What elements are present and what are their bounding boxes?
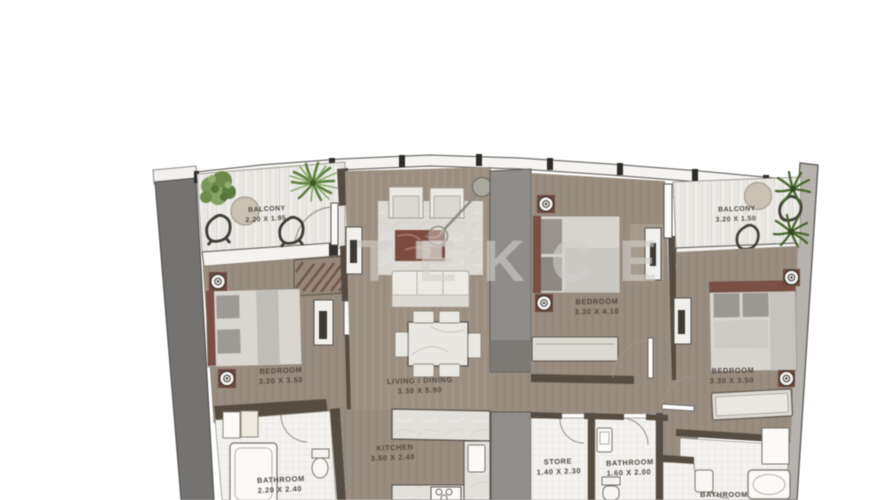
svg-text:3.30 X 3.50: 3.30 X 3.50 [710,376,755,386]
svg-text:1.60 X 2.00: 1.60 X 2.00 [607,467,652,478]
svg-text:BEDROOM: BEDROOM [711,366,754,376]
svg-text:3.30 X 4.10: 3.30 X 4.10 [575,307,620,317]
svg-text:BALCONY: BALCONY [718,205,756,213]
svg-text:BEDROOM: BEDROOM [259,365,302,376]
svg-text:TEKCE: TEKCE [357,229,684,294]
svg-text:BEDROOM: BEDROOM [575,297,618,307]
svg-text:BATHROOM: BATHROOM [700,490,748,499]
svg-text:1.40 X 2.30: 1.40 X 2.30 [537,466,582,477]
svg-text:STORE: STORE [544,457,573,467]
svg-text:3.30 X 5.90: 3.30 X 5.90 [398,385,443,396]
svg-text:3.20 X 1.50: 3.20 X 1.50 [715,215,756,223]
svg-text:BATHROOM: BATHROOM [606,457,654,468]
svg-text:KITCHEN: KITCHEN [376,442,413,453]
